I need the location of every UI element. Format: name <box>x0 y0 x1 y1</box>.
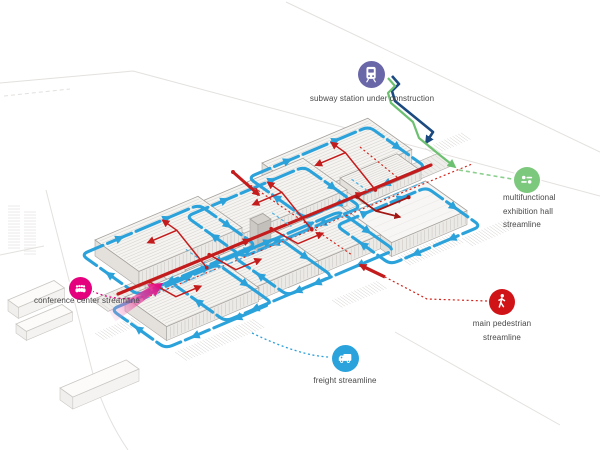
pedestrian-icon <box>489 289 515 315</box>
halls-layer <box>95 118 467 340</box>
pedestrian-entry-arrow <box>360 265 385 277</box>
context-block <box>60 360 139 409</box>
freight-label: freight streamline <box>313 374 376 388</box>
sliders-icon <box>514 167 540 193</box>
truck-icon <box>332 345 359 372</box>
pedestrian-label: main pedestrian streamline <box>453 317 551 344</box>
conference-label: conference center streamline <box>34 294 140 308</box>
diagram-canvas: subway station under construction multif… <box>0 0 600 450</box>
subway-label: subway station under construction <box>310 92 434 106</box>
train-icon <box>358 61 385 88</box>
exhibition-hall-label: multifunctional exhibition hall streamli… <box>503 191 556 232</box>
